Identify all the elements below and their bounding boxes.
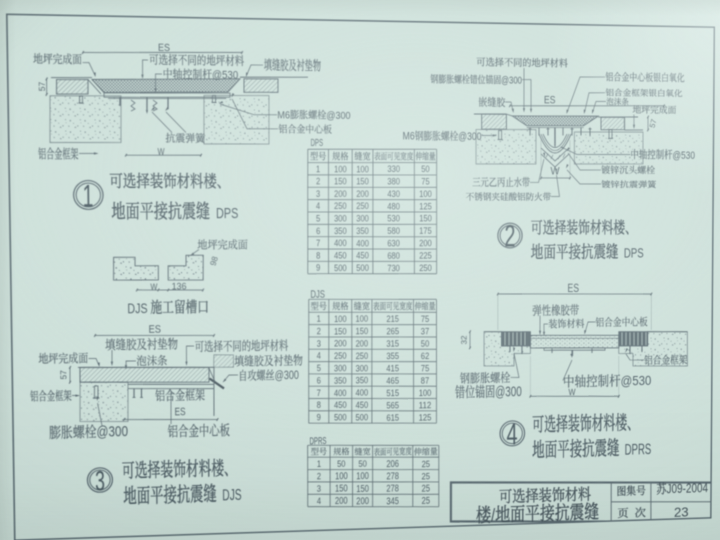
svg-text:6: 6 [316,226,320,236]
svg-text:ES: ES [567,282,579,295]
svg-text:450: 450 [356,401,369,412]
svg-text:300: 300 [356,364,369,374]
svg-text:M6: M6 [277,110,290,122]
svg-text:400: 400 [334,239,347,249]
svg-text:150: 150 [356,327,369,337]
svg-text:DPS: DPS [216,206,238,222]
svg-text:98: 98 [208,255,220,267]
svg-text:62: 62 [421,351,430,361]
svg-text:@300: @300 [326,110,350,122]
svg-text:465: 465 [386,376,399,386]
svg-text:5: 5 [317,364,322,374]
svg-text:57: 57 [37,82,47,92]
svg-text:ES: ES [175,407,186,419]
svg-text:4: 4 [317,351,322,361]
svg-text:9: 9 [316,263,320,273]
svg-text:7: 7 [317,388,321,398]
svg-text:DPS: DPS [311,138,324,149]
svg-text:50: 50 [421,339,430,349]
svg-text:25: 25 [422,484,431,494]
svg-text:175: 175 [419,226,432,236]
svg-text:100: 100 [356,314,369,324]
svg-text:@300: @300 [501,75,522,87]
svg-text:7: 7 [316,239,320,249]
svg-text:@300: @300 [458,132,481,143]
svg-text:3: 3 [316,189,320,199]
svg-text:25: 25 [422,459,431,469]
svg-text:278: 278 [386,472,399,483]
svg-text:730: 730 [387,264,400,274]
svg-text:4: 4 [317,496,322,506]
svg-text:500: 500 [334,263,347,273]
svg-text:DJS: DJS [310,287,324,300]
svg-text:2: 2 [316,177,320,187]
svg-text:415: 415 [386,364,399,374]
svg-text:200: 200 [356,339,369,349]
svg-text:@300: @300 [275,368,299,383]
svg-text:400: 400 [356,388,369,398]
svg-text:150: 150 [334,327,347,337]
svg-text:57: 57 [58,370,68,380]
svg-text:100: 100 [356,165,369,175]
svg-text:/: / [491,505,495,526]
svg-text:250: 250 [356,202,369,212]
svg-text:W: W [150,282,157,292]
svg-text:6: 6 [317,376,321,386]
svg-text:480: 480 [387,202,400,212]
svg-text:125: 125 [419,202,432,212]
svg-text:225: 225 [419,251,432,261]
svg-text:200: 200 [356,189,369,199]
svg-text:530: 530 [387,214,400,224]
svg-text:615: 615 [386,413,399,423]
svg-text:J09-2004: J09-2004 [666,481,708,497]
svg-text:ES: ES [149,322,162,336]
svg-text:W: W [568,388,575,398]
svg-text:345: 345 [386,497,399,508]
svg-text:4: 4 [316,202,321,212]
svg-text:ES: ES [158,42,170,54]
svg-text:1: 1 [316,165,320,175]
svg-text:75: 75 [421,364,430,374]
svg-text:265: 265 [386,327,399,337]
svg-text:W: W [158,147,165,157]
svg-text:75: 75 [421,314,430,324]
svg-text:500: 500 [334,413,347,424]
svg-text:380: 380 [387,177,400,187]
svg-text:150: 150 [356,177,369,187]
svg-text:200: 200 [419,239,432,249]
svg-text:100: 100 [356,472,369,483]
svg-text:2: 2 [317,327,321,337]
svg-text:200: 200 [334,339,347,349]
svg-text:450: 450 [356,251,369,261]
svg-text:100: 100 [334,314,347,324]
svg-text:W: W [550,164,560,177]
svg-text:355: 355 [386,351,399,361]
svg-text:450: 450 [334,401,347,412]
svg-text:25: 25 [422,497,431,507]
svg-text:630: 630 [387,239,400,249]
svg-text:3: 3 [95,465,105,497]
svg-text:M6: M6 [403,131,415,142]
svg-text:136: 136 [172,282,187,292]
svg-text:250: 250 [334,202,347,212]
svg-text:580: 580 [387,226,400,236]
svg-text:300: 300 [334,364,347,375]
svg-text:50: 50 [337,459,346,469]
svg-text:ES: ES [544,94,556,106]
svg-text:100: 100 [335,472,348,483]
svg-text:@530: @530 [672,148,695,161]
svg-text:150: 150 [335,484,348,495]
svg-text:23: 23 [674,506,689,521]
svg-text:200: 200 [334,189,347,199]
svg-text:2: 2 [317,472,322,482]
svg-text:215: 215 [386,314,399,324]
svg-text:@300: @300 [495,384,522,400]
svg-text:37: 37 [421,327,429,337]
svg-text:4: 4 [506,417,517,452]
svg-text:125: 125 [419,413,432,423]
svg-text:1: 1 [82,178,93,213]
svg-text:DPRS: DPRS [625,440,652,458]
svg-text:515: 515 [386,388,399,398]
svg-text:@300: @300 [96,424,128,441]
svg-text:565: 565 [386,401,399,411]
svg-text:430: 430 [387,189,400,199]
svg-text:50: 50 [358,459,367,469]
svg-text:25: 25 [422,472,431,482]
svg-text:8: 8 [317,401,321,411]
svg-text:DJS: DJS [127,301,147,317]
svg-text:250: 250 [356,351,369,361]
svg-text:5: 5 [316,214,320,224]
svg-text:75: 75 [421,177,429,187]
svg-text:200: 200 [335,496,348,507]
svg-text:112: 112 [419,401,432,411]
svg-text:150: 150 [356,484,369,495]
svg-text:278: 278 [386,484,399,495]
svg-text:2: 2 [504,219,515,253]
svg-text:100: 100 [419,388,432,398]
svg-text:400: 400 [334,388,347,399]
svg-text:32: 32 [459,335,468,344]
svg-text:1: 1 [317,459,322,469]
svg-text:9: 9 [317,413,321,423]
svg-text:87: 87 [421,376,430,386]
svg-text:300: 300 [334,214,347,224]
svg-text:3: 3 [317,339,321,349]
svg-text:350: 350 [356,226,369,236]
svg-text:200: 200 [356,497,369,508]
svg-text:57: 57 [647,118,658,129]
svg-text:350: 350 [334,226,347,236]
svg-text:450: 450 [334,251,347,261]
svg-text:100: 100 [334,164,347,174]
svg-text:DPS: DPS [624,246,644,261]
svg-text:1: 1 [317,314,321,324]
svg-text:@530: @530 [621,373,652,389]
svg-text:3: 3 [317,484,322,494]
svg-text:206: 206 [386,459,399,470]
svg-text:680: 680 [387,251,400,261]
svg-text:330: 330 [387,165,400,175]
svg-text:315: 315 [386,339,399,349]
svg-text:50: 50 [421,165,429,175]
svg-text:8: 8 [316,251,320,261]
svg-text:350: 350 [334,376,347,387]
svg-text:DJS: DJS [222,486,241,504]
svg-text:250: 250 [334,351,347,361]
svg-text:300: 300 [356,214,369,224]
svg-text:100: 100 [419,189,432,199]
svg-text:500: 500 [356,263,369,273]
svg-text:250: 250 [419,264,432,274]
svg-text:350: 350 [356,376,369,386]
svg-text:150: 150 [334,177,347,187]
svg-text:400: 400 [356,239,369,249]
svg-text:150: 150 [419,214,432,224]
svg-text:500: 500 [356,413,369,424]
